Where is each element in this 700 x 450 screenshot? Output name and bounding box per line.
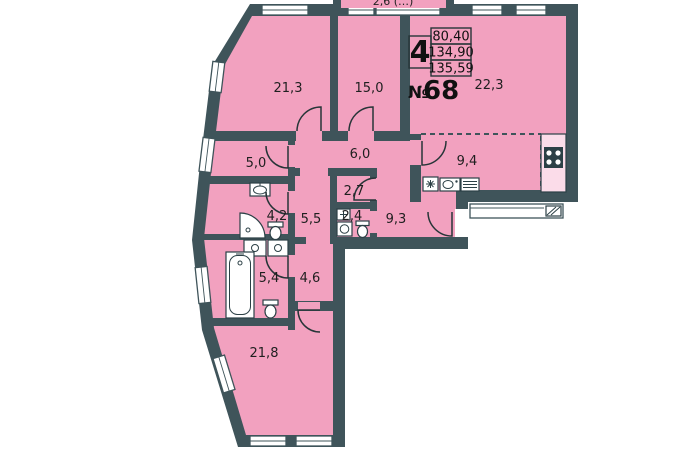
room-label-closet: 2,7 — [344, 184, 365, 199]
room-label-bedroom-top-left: 21,3 — [274, 81, 303, 96]
room-label-bathroom-main: 5,4 — [259, 271, 280, 286]
room-label-corridor-entry: 9,3 — [386, 212, 407, 227]
room-label-bedroom-bottom: 21,8 — [250, 346, 279, 361]
dishwasher-icon — [461, 178, 479, 191]
loggia — [470, 204, 563, 218]
window — [250, 436, 286, 446]
loggia-hatch-icon — [546, 206, 561, 216]
floor-plan-page: 2,6 (…) — [0, 0, 700, 450]
window — [262, 5, 308, 15]
window — [296, 436, 332, 446]
washer-icon — [337, 222, 352, 236]
window — [472, 5, 502, 15]
room-label-wc: 2,4 — [342, 209, 363, 224]
room-label-bathroom-small: 4,2 — [267, 209, 288, 224]
room-label-hallway: 5,5 — [301, 212, 322, 227]
area-total-with-balcony: 135,59 — [428, 62, 474, 77]
stove-burners-icon — [544, 147, 563, 168]
room-label-living-room: 22,3 — [475, 78, 504, 93]
unit-number: 68 — [423, 76, 459, 106]
room-label-kitchen: 9,4 — [457, 154, 478, 169]
bathtub-icon — [226, 252, 254, 318]
room-label-storage: 5,0 — [246, 156, 267, 171]
kitchen-sink-icon — [440, 178, 460, 191]
floor-plan: 2,6 (…) — [0, 0, 700, 450]
window — [516, 5, 546, 15]
balcony-label: 2,6 (…) — [373, 0, 414, 8]
room-label-corridor-lower: 4,6 — [300, 271, 321, 286]
room-label-hall: 6,0 — [350, 147, 371, 162]
area-living: 80,40 — [432, 30, 469, 45]
room-label-bedroom-top-mid: 15,0 — [355, 81, 384, 96]
vent-fan-icon — [423, 177, 438, 191]
closet-appliance-icon — [268, 240, 288, 256]
balcony-top: 2,6 (…) — [333, 0, 454, 8]
area-total: 134,90 — [428, 46, 474, 61]
sink-icon — [250, 183, 270, 196]
